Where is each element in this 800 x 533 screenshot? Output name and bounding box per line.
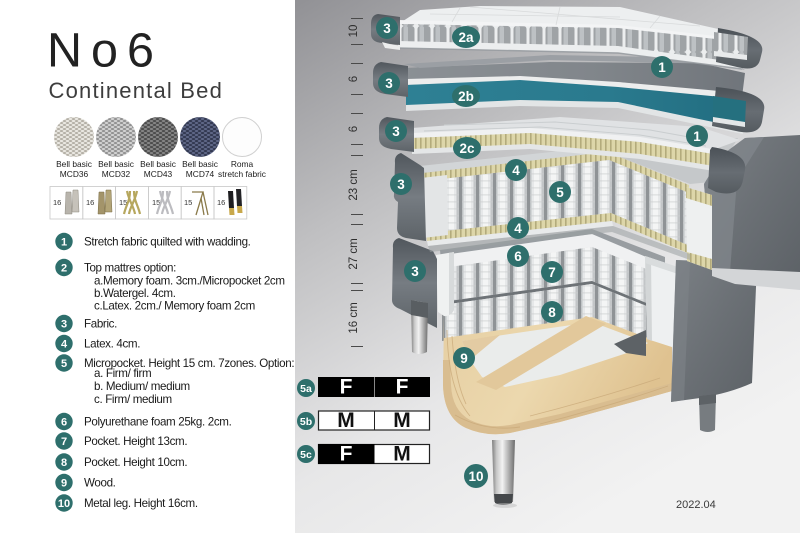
- svg-text:Fabric.: Fabric.: [84, 318, 117, 331]
- svg-text:4: 4: [514, 221, 522, 236]
- svg-text:M: M: [337, 409, 355, 432]
- svg-text:F: F: [396, 376, 409, 399]
- svg-text:MCD36: MCD36: [60, 169, 89, 179]
- svg-text:Bell basic: Bell basic: [56, 159, 92, 169]
- svg-text:MCD32: MCD32: [102, 169, 131, 179]
- svg-text:Continental Bed: Continental Bed: [49, 78, 224, 103]
- svg-text:8: 8: [61, 457, 67, 469]
- svg-text:5b: 5b: [300, 416, 312, 428]
- svg-text:Metal leg. Height 16cm.: Metal leg. Height 16cm.: [84, 497, 198, 510]
- svg-text:3: 3: [411, 264, 419, 279]
- svg-text:16: 16: [217, 198, 225, 207]
- svg-text:Bell basic: Bell basic: [182, 159, 218, 169]
- svg-text:2022.04: 2022.04: [676, 499, 716, 511]
- svg-text:a. Firm/ firm: a. Firm/ firm: [94, 367, 151, 380]
- svg-text:9: 9: [61, 477, 67, 489]
- svg-text:b. Medium/ medium: b. Medium/ medium: [94, 380, 190, 393]
- svg-text:b.Watergel. 4cm.: b.Watergel. 4cm.: [94, 287, 176, 300]
- svg-text:M: M: [393, 443, 411, 466]
- svg-text:6: 6: [61, 416, 67, 428]
- svg-text:F: F: [340, 376, 353, 399]
- svg-text:3: 3: [385, 76, 393, 91]
- svg-text:1: 1: [658, 60, 666, 75]
- svg-text:16 cm: 16 cm: [348, 302, 360, 333]
- svg-text:Top mattres option:: Top mattres option:: [84, 262, 176, 275]
- svg-text:10: 10: [468, 469, 483, 484]
- svg-text:23 cm: 23 cm: [348, 169, 360, 200]
- svg-text:Pocket. Height 13cm.: Pocket. Height 13cm.: [84, 435, 187, 448]
- svg-text:9: 9: [460, 351, 468, 366]
- svg-text:6: 6: [348, 76, 360, 82]
- svg-text:c.Latex. 2cm./ Memory foam 2cm: c.Latex. 2cm./ Memory foam 2cm: [94, 300, 255, 313]
- svg-text:2: 2: [61, 262, 67, 274]
- svg-text:5c: 5c: [300, 449, 312, 461]
- svg-text:1: 1: [693, 129, 701, 144]
- svg-text:10: 10: [58, 498, 70, 510]
- svg-text:Wood.: Wood.: [84, 477, 116, 490]
- svg-text:3: 3: [383, 21, 391, 36]
- svg-text:5: 5: [61, 358, 67, 370]
- svg-text:Bell basic: Bell basic: [140, 159, 176, 169]
- svg-text:8: 8: [548, 305, 556, 320]
- svg-text:2b: 2b: [458, 89, 474, 104]
- svg-text:Bell basic: Bell basic: [98, 159, 134, 169]
- svg-text:16: 16: [86, 198, 94, 207]
- svg-text:Stretch fabric quilted with wa: Stretch fabric quilted with wadding.: [84, 236, 251, 249]
- svg-text:a.Memory foam. 3cm./Micropocke: a.Memory foam. 3cm./Micropocket 2cm: [94, 275, 285, 288]
- svg-text:c. Firm/ medium: c. Firm/ medium: [94, 393, 172, 406]
- svg-text:27 cm: 27 cm: [348, 238, 360, 269]
- svg-text:2c: 2c: [459, 141, 475, 156]
- svg-text:Polyurethane foam 25kg. 2cm.: Polyurethane foam 25kg. 2cm.: [84, 416, 232, 429]
- svg-text:3: 3: [397, 177, 405, 192]
- svg-text:stretch fabric: stretch fabric: [218, 169, 266, 179]
- svg-text:M: M: [393, 409, 411, 432]
- svg-text:7: 7: [61, 436, 67, 448]
- svg-text:F: F: [340, 443, 353, 466]
- svg-text:16: 16: [53, 198, 61, 207]
- svg-text:3: 3: [61, 318, 67, 330]
- svg-text:3: 3: [392, 124, 400, 139]
- svg-text:10: 10: [348, 25, 360, 38]
- svg-text:MCD43: MCD43: [144, 169, 173, 179]
- svg-text:2a: 2a: [458, 30, 474, 45]
- svg-text:No6: No6: [47, 24, 163, 78]
- svg-text:5: 5: [556, 185, 564, 200]
- svg-text:MCD74: MCD74: [186, 169, 215, 179]
- svg-text:6: 6: [514, 249, 522, 264]
- svg-text:1: 1: [61, 236, 67, 248]
- svg-text:Roma: Roma: [231, 159, 254, 169]
- svg-text:7: 7: [548, 265, 556, 280]
- svg-text:4: 4: [61, 338, 68, 350]
- svg-text:6: 6: [348, 126, 360, 132]
- svg-text:Pocket. Height 10cm.: Pocket. Height 10cm.: [84, 456, 187, 469]
- svg-text:4: 4: [512, 163, 520, 178]
- svg-text:Latex. 4cm.: Latex. 4cm.: [84, 338, 140, 351]
- svg-text:15: 15: [184, 198, 192, 207]
- svg-text:5a: 5a: [300, 383, 312, 395]
